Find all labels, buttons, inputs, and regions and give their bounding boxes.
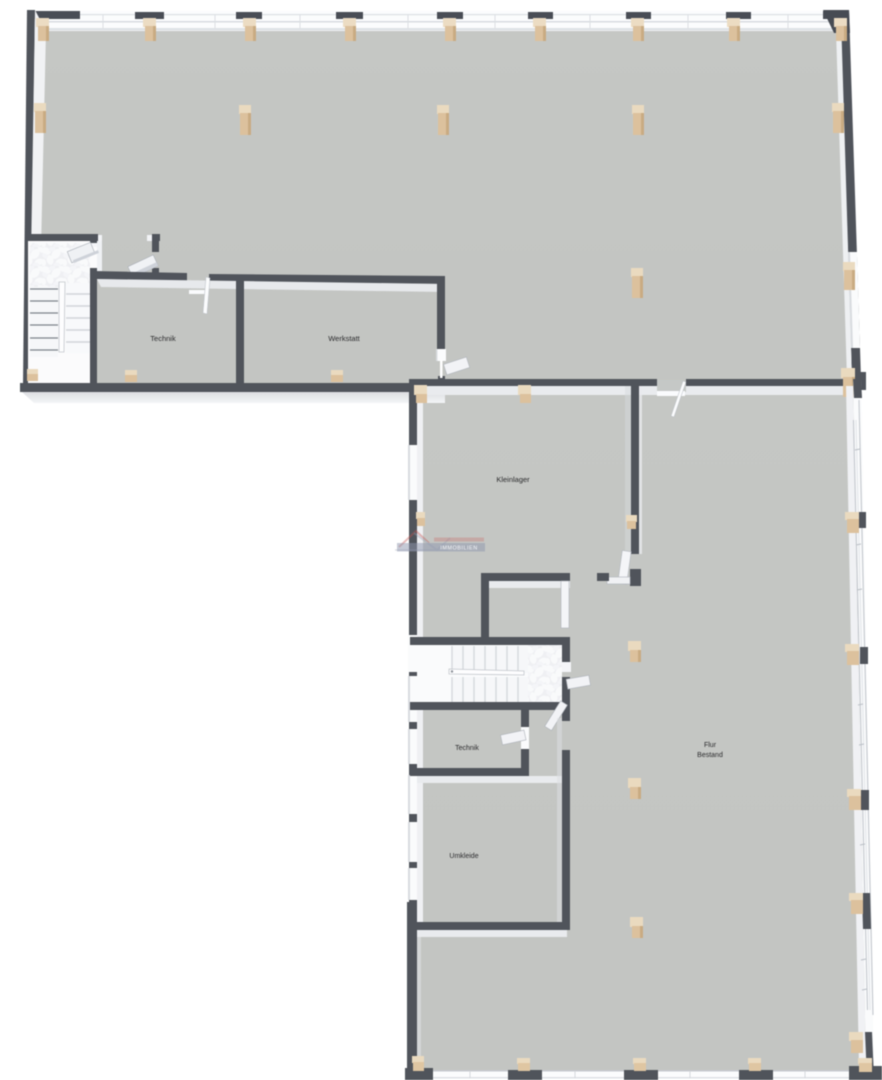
svg-text:Technik: Technik [150, 334, 176, 343]
svg-text:Umkleide: Umkleide [449, 853, 478, 860]
svg-text:Kleinlager: Kleinlager [496, 475, 530, 484]
svg-text:Bestand: Bestand [697, 752, 723, 759]
svg-text:Technik: Technik [455, 745, 479, 752]
svg-text:Flur: Flur [704, 742, 717, 749]
svg-text:Werkstatt: Werkstatt [328, 334, 360, 343]
svg-text:IMMOBILIEN: IMMOBILIEN [440, 546, 477, 552]
